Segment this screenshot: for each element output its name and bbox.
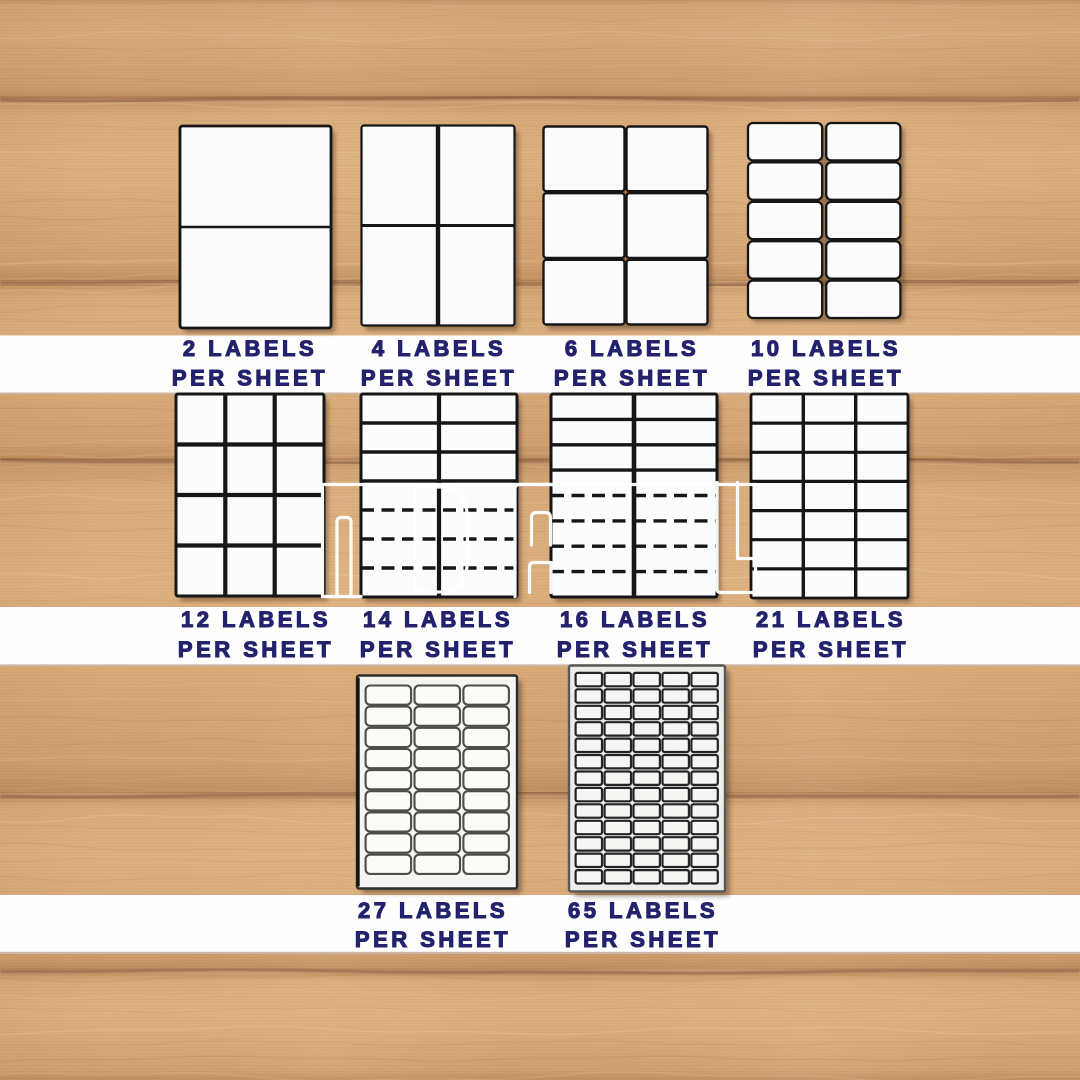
svg-text:PER SHEET: PER SHEET	[360, 637, 516, 662]
svg-text:PER SHEET: PER SHEET	[554, 366, 710, 391]
svg-text:PER SHEET: PER SHEET	[557, 637, 713, 662]
svg-text:PER SHEET: PER SHEET	[361, 366, 517, 391]
svg-text:PER SHEET: PER SHEET	[178, 637, 334, 662]
svg-text:PER SHEET: PER SHEET	[172, 366, 328, 391]
svg-text:10 LABELS: 10 LABELS	[751, 336, 901, 361]
svg-text:PER SHEET: PER SHEET	[753, 637, 909, 662]
svg-text:14 LABELS: 14 LABELS	[363, 607, 513, 632]
svg-text:12 LABELS: 12 LABELS	[181, 607, 331, 632]
svg-text:PER SHEET: PER SHEET	[565, 927, 721, 952]
svg-text:PER SHEET: PER SHEET	[748, 366, 904, 391]
svg-text:16 LABELS: 16 LABELS	[560, 607, 710, 632]
svg-text:2 LABELS: 2 LABELS	[183, 336, 317, 361]
svg-text:4 LABELS: 4 LABELS	[372, 336, 506, 361]
svg-text:65 LABELS: 65 LABELS	[568, 898, 718, 923]
svg-text:6 LABELS: 6 LABELS	[565, 336, 699, 361]
svg-text:21 LABELS: 21 LABELS	[756, 607, 906, 632]
svg-text:PER SHEET: PER SHEET	[355, 927, 511, 952]
svg-text:27 LABELS: 27 LABELS	[358, 898, 508, 923]
